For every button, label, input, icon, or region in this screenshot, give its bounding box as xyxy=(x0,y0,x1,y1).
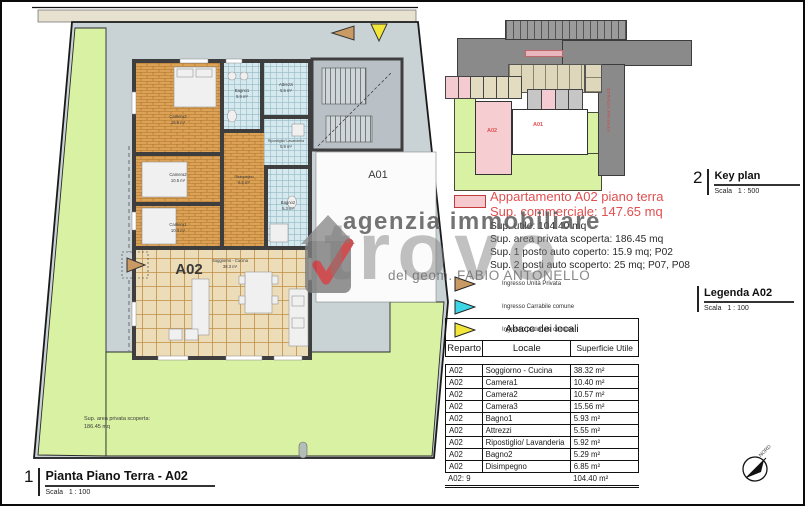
table-row: A02Bagno15.93 m² xyxy=(446,413,638,425)
garden-note-line1: Sup. area privata scoperta: xyxy=(84,416,151,422)
table-cell: A02 xyxy=(446,425,483,436)
room-area: 5.9 m² xyxy=(280,144,292,149)
info-detail: Sup. area privata scoperta: 186.45 mq xyxy=(490,234,663,245)
table-cell: A02 xyxy=(446,401,483,412)
room-label: Bagno1 xyxy=(235,88,250,93)
apartment-subtitle: Sup. commerciale: 147.65 mq xyxy=(490,204,663,219)
room-area: 5.5 m² xyxy=(280,88,292,93)
toilet-icon xyxy=(228,110,237,122)
table-cell: Camera1 xyxy=(483,377,571,388)
view-scale: Scala 1 : 100 xyxy=(704,305,794,312)
view-scale: Scala 1 : 500 xyxy=(714,188,800,195)
table-row: A02Soggiorno - Cucina38.32 m² xyxy=(446,365,638,377)
table-cell: Ripostiglio/ Lavanderia xyxy=(483,437,571,448)
view-number: 2 xyxy=(693,169,702,186)
room-label: Camera2 xyxy=(169,172,187,177)
table-cell: 5.92 m² xyxy=(571,437,638,448)
keyplan-a01-label: A01 xyxy=(533,122,543,128)
table-cell: A02 xyxy=(446,437,483,448)
keyplan-street-label xyxy=(525,50,563,57)
table-cell: A02 xyxy=(446,389,483,400)
table-cell: 15.56 m² xyxy=(571,401,638,412)
abaco-table: Abaco dei locali Reparto Locale Superfic… xyxy=(445,318,639,488)
apartment-a01-label: A01 xyxy=(368,169,388,181)
table-cell: A02 xyxy=(446,449,483,460)
room-area: 6.8 m² xyxy=(238,180,250,185)
keyplan-road xyxy=(562,40,692,66)
table-row: A02Disimpegno6.85 m² xyxy=(446,461,638,472)
info-detail: Sup. utile: 104.40 mq xyxy=(490,221,586,232)
table-row: A02Bagno25.29 m² xyxy=(446,449,638,461)
private-entrance-arrow-icon xyxy=(454,276,476,292)
north-label: NORD xyxy=(758,444,773,459)
drawing-sheet: Camera3 15.5 m² Bagno1 5.9 m² Attrezzi 5… xyxy=(0,0,805,506)
table-header: Superficie Utile xyxy=(571,341,638,356)
table-cell: 5.29 m² xyxy=(571,449,638,460)
table-row: A02Camera210.57 m² xyxy=(446,389,638,401)
keyplan-parking-lot xyxy=(585,64,602,93)
table-cell: Bagno1 xyxy=(483,413,571,424)
key-plan: A02 A01 STRADA PRIVATA xyxy=(445,12,695,196)
info-detail: Sup. 1 posto auto coperto: 15.9 mq; P02 xyxy=(490,247,673,258)
stair-flight xyxy=(326,116,372,142)
room-area: 10.4 m² xyxy=(171,228,186,233)
table-title: Abaco dei locali xyxy=(445,318,639,341)
table-cell: A02 xyxy=(446,413,483,424)
table-header: Reparto xyxy=(446,341,483,356)
total-label: A02: 9 xyxy=(445,473,570,485)
room-area: 10.5 m² xyxy=(171,178,186,183)
table-cell: Camera3 xyxy=(483,401,571,412)
table-row: A02Camera315.56 m² xyxy=(446,401,638,413)
driveway-entrance-arrow-icon xyxy=(454,299,476,315)
keyplan-a02-building: A02 xyxy=(475,101,512,175)
info-detail: Sup. 2 posti auto scoperto: 25 mq; P07, … xyxy=(490,260,690,271)
keyplan-parking-row xyxy=(505,20,627,40)
view-title: Key plan xyxy=(714,170,800,182)
table-cell: 10.57 m² xyxy=(571,389,638,400)
table-row: A02Ripostiglio/ Lavanderia5.92 m² xyxy=(446,437,638,449)
view-scale: Scala 1 : 100 xyxy=(45,489,215,496)
table-cell: Bagno2 xyxy=(483,449,571,460)
plan-title-block: 1 Pianta Piano Terra - A02 Scala 1 : 100 xyxy=(24,468,215,496)
north-compass: NORD xyxy=(733,439,781,489)
keyplan-a02-label: A02 xyxy=(487,128,497,134)
table-cell: A02 xyxy=(446,461,483,472)
room-label: Soggiorno - Cucina xyxy=(212,258,249,263)
entrance-legend-item: Ingresso Carrabile comune xyxy=(454,299,574,315)
table-cell: Camera2 xyxy=(483,389,571,400)
entrance-legend-item: Ingresso Unità Privata xyxy=(454,276,561,292)
keyplan-parking-stalls xyxy=(445,76,522,99)
entrance-label: Ingresso Unità Privata xyxy=(502,281,561,287)
table-row: A02Attrezzi5.55 m² xyxy=(446,425,638,437)
sink-icon xyxy=(240,72,248,80)
view-number: 1 xyxy=(24,468,33,485)
table-cell: 38.32 m² xyxy=(571,365,638,376)
abaco-body: A02Soggiorno - Cucina38.32 m²A02Camera11… xyxy=(445,364,639,473)
kitchen-island-icon xyxy=(192,279,209,335)
table-row: A02Camera110.40 m² xyxy=(446,377,638,389)
apartment-title: Appartamento A02 piano terra xyxy=(490,189,663,204)
room-disimpegno-floor xyxy=(224,133,264,246)
room-area: 5.9 m² xyxy=(236,94,248,99)
a02-color-swatch xyxy=(454,195,486,208)
shower-icon xyxy=(270,224,288,242)
room-label: Ripostiglio/ Lavanderia xyxy=(268,139,304,143)
room-area: 5.3 m² xyxy=(282,206,294,211)
room-label: Camera1 xyxy=(169,222,187,227)
sidewalk-strip xyxy=(38,10,416,22)
gate-pillar xyxy=(299,442,307,458)
table-cell: 6.85 m² xyxy=(571,461,638,472)
table-header: Locale xyxy=(483,341,571,356)
apartment-a02-label: A02 xyxy=(175,261,203,278)
sink-icon xyxy=(228,72,236,80)
room-label: Disimpegno xyxy=(235,175,254,179)
floor-plan-drawing: Camera3 15.5 m² Bagno1 5.9 m² Attrezzi 5… xyxy=(30,6,450,466)
table-cell: 10.40 m² xyxy=(571,377,638,388)
keyplan-a01-building: A01 xyxy=(512,109,588,155)
building-a02: Camera3 15.5 m² Bagno1 5.9 m² Attrezzi 5… xyxy=(132,59,312,360)
total-value: 104.40 m² xyxy=(570,473,639,485)
entrance-label: Ingresso Carrabile comune xyxy=(502,304,574,310)
dining-table-icon xyxy=(245,272,272,313)
table-cell: A02 xyxy=(446,377,483,388)
keyplan-road-label: STRADA PRIVATA xyxy=(606,88,611,168)
room-area: 15.5 m² xyxy=(171,120,186,125)
table-cell: 5.93 m² xyxy=(571,413,638,424)
garden-left xyxy=(38,28,106,456)
stairwell-a01 xyxy=(312,59,402,150)
washer-icon xyxy=(292,124,304,136)
garden-note-line2: 186.45 mq xyxy=(84,424,110,430)
keyplan-road xyxy=(598,64,625,176)
table-cell: Attrezzi xyxy=(483,425,571,436)
room-label: Attrezzi xyxy=(279,82,293,87)
legend-title-block: Legenda A02 Scala 1 : 100 xyxy=(697,286,794,312)
view-title: Legenda A02 xyxy=(704,287,794,299)
table-cell: Disimpegno xyxy=(483,461,571,472)
table-total-row: A02: 9 104.40 m² xyxy=(445,473,639,488)
view-title: Pianta Piano Terra - A02 xyxy=(45,469,215,483)
table-cell: 5.55 m² xyxy=(571,425,638,436)
table-cell: Soggiorno - Cucina xyxy=(483,365,571,376)
stair-flight xyxy=(322,68,366,104)
keyplan-parking-stalls xyxy=(527,89,583,111)
room-label: Bagno2 xyxy=(281,200,296,205)
keyplan-title-block: 2 Key plan Scala 1 : 500 xyxy=(693,169,800,195)
room-area: 38.3 m² xyxy=(223,264,238,269)
table-cell: A02 xyxy=(446,365,483,376)
table-header-row: Reparto Locale Superficie Utile xyxy=(445,340,639,357)
room-label: Camera3 xyxy=(169,114,187,119)
